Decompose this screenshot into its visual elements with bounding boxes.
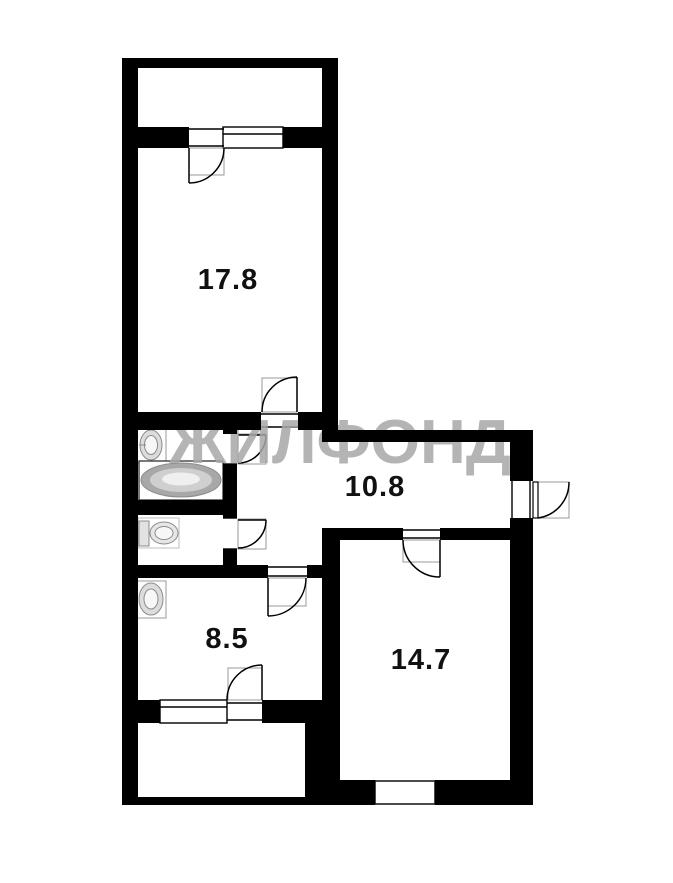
kitchen-sink-icon bbox=[137, 581, 166, 618]
bedroom-window bbox=[375, 781, 435, 804]
wall-kitchen-bottom-right bbox=[262, 700, 322, 723]
wall-balcony-divider-right bbox=[283, 127, 322, 148]
wall-living-right bbox=[322, 58, 338, 442]
floor-plan: ЖИЛФОНД 17.8 10.8 8.5 14.7 bbox=[0, 0, 673, 883]
hallway-area-label: 10.8 bbox=[345, 471, 405, 503]
wall-outer-top bbox=[122, 58, 338, 68]
wall-bedroom-top-right bbox=[440, 528, 513, 540]
wall-outer-right-upper bbox=[510, 432, 533, 481]
living-room-area-label: 17.8 bbox=[198, 264, 258, 296]
wall-living-bottom-right bbox=[298, 412, 338, 430]
bedroom-area-label: 14.7 bbox=[391, 644, 451, 676]
wall-bedroom-bottom-right bbox=[435, 780, 533, 805]
kitchen-area-label: 8.5 bbox=[205, 623, 248, 655]
wall-outer-right-lower bbox=[510, 518, 533, 805]
kitchen-balcony-window bbox=[160, 700, 227, 723]
wall-bedroom-top-left bbox=[340, 528, 403, 540]
floor-plan-page: ЖИЛФОНД 17.8 10.8 8.5 14.7 bbox=[0, 0, 673, 883]
wall-balcony-divider-left bbox=[138, 127, 189, 148]
wall-bath-divider-top bbox=[223, 430, 237, 434]
wall-kitchen-bottom-left bbox=[122, 700, 160, 723]
wall-outer-left bbox=[122, 58, 138, 805]
wall-bath-toilet-divider bbox=[122, 500, 237, 515]
wall-hallway-top bbox=[338, 430, 533, 442]
wall-balcony-bottom-outer bbox=[122, 797, 327, 805]
wall-living-bottom-left bbox=[122, 412, 261, 430]
bathroom-sink-icon bbox=[137, 427, 166, 463]
wall-kitchen-top-left bbox=[122, 565, 268, 578]
wall-bedroom-bottom-left bbox=[322, 780, 375, 805]
wall-kitchen-top-right bbox=[307, 565, 322, 578]
balcony-top-window bbox=[223, 127, 283, 148]
